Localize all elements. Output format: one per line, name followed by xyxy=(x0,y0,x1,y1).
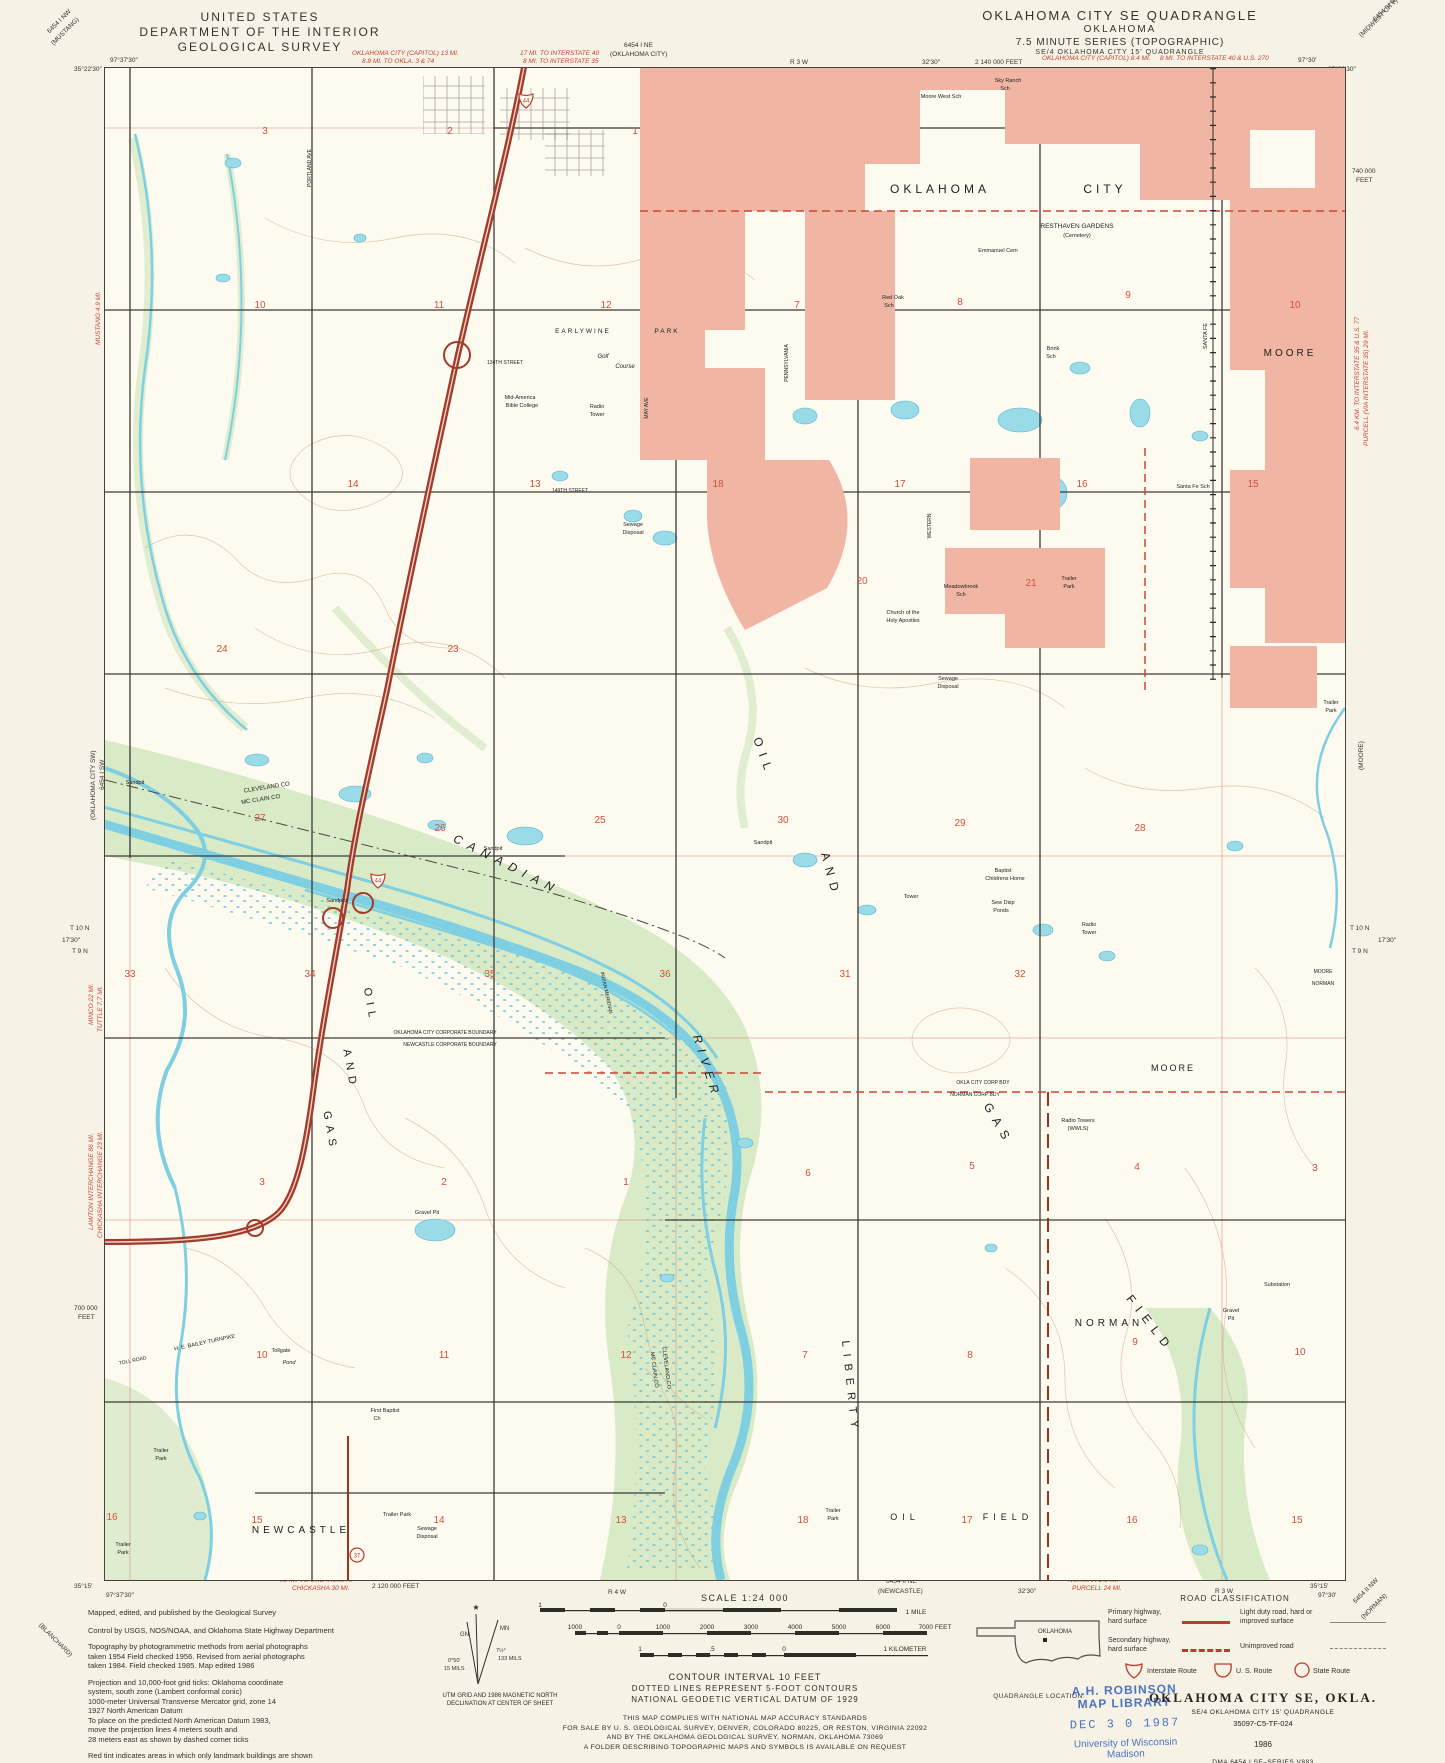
margin-note: 17 MI. TO INTERSTATE 40 xyxy=(520,50,599,57)
state-route-circle-icon xyxy=(1295,1663,1309,1677)
scale-label: 1 KILOMETER xyxy=(884,1646,927,1653)
production-note-line: Projection and 10,000-foot grid ticks: O… xyxy=(88,1678,438,1688)
section-number: 10 xyxy=(1294,1347,1306,1358)
margin-note: (BLANCHARD) xyxy=(37,1622,73,1658)
compliance-line: A FOLDER DESCRIBING TOPOGRAPHIC MAPS AND… xyxy=(500,1743,990,1753)
section-number: 7 xyxy=(794,300,800,311)
map-label: Pit xyxy=(1228,1316,1235,1322)
production-note-line: Red tint indicates areas in which only l… xyxy=(88,1751,438,1761)
map-label: FIELD xyxy=(983,1512,1034,1522)
margin-note: TUTTLE 7.7 MI. xyxy=(97,986,104,1032)
map-label: NORMAN xyxy=(1075,1318,1143,1329)
map-label: PORTLAND AVE xyxy=(307,148,313,187)
interstate-shield-icon xyxy=(1126,1664,1142,1678)
map-label: Park xyxy=(1325,708,1337,714)
section-number: 20 xyxy=(856,576,868,587)
compliance-note: THIS MAP COMPLIES WITH NATIONAL MAP ACCU… xyxy=(500,1714,990,1752)
margin-note: 97°30′ xyxy=(1298,57,1316,64)
section-number: 12 xyxy=(600,300,612,311)
map-label: MAY AVE xyxy=(644,397,650,419)
section-number: 16 xyxy=(106,1512,118,1523)
primary-highway-sample xyxy=(1182,1621,1230,1624)
map-label: OKLAHOMA CITY CORPORATE BOUNDARY xyxy=(393,1030,497,1036)
topo-map-sheet: UNITED STATES DEPARTMENT OF THE INTERIOR… xyxy=(0,0,1445,1763)
map-label: Park xyxy=(827,1516,839,1522)
margin-note: 8 MI. TO INTERSTATE 35 xyxy=(523,58,599,65)
interstate-route-label: Interstate Route xyxy=(1147,1668,1197,1675)
scale-bars: SCALE 1:24 000 101 MILE10000100020003000… xyxy=(480,1592,1010,1664)
section-number: 18 xyxy=(712,479,724,490)
section-number: 13 xyxy=(615,1515,627,1526)
map-label: Tower xyxy=(1082,930,1097,936)
section-number: 17 xyxy=(961,1515,973,1526)
section-number: 16 xyxy=(1076,479,1088,490)
state-route-label: State Route xyxy=(1313,1668,1350,1675)
section-number: 18 xyxy=(797,1515,809,1526)
map-label: Sky Ranch xyxy=(995,78,1022,84)
scale-label: 1000 xyxy=(656,1624,671,1631)
section-number: 12 xyxy=(620,1350,632,1361)
map-label: Mid-America xyxy=(505,395,537,401)
map-label: Sewage xyxy=(938,676,958,682)
scale-label: 5000 xyxy=(832,1624,847,1631)
map-label: NORMAN CORP BDY xyxy=(950,1092,1000,1098)
margin-note: 6.4 KM. TO INTERSTATE 35 & U.S. 77 xyxy=(1354,317,1361,430)
margin-note: 97°37′30″ xyxy=(110,57,138,64)
scale-label: 6000 xyxy=(876,1624,891,1631)
margin-note: (OKLAHOMA CITY SW) xyxy=(90,750,97,820)
map-label: Ponds xyxy=(993,908,1009,914)
map-label: EARLYWINE xyxy=(555,328,611,335)
route-number: 44 xyxy=(523,99,530,105)
scale-label: 2000 xyxy=(700,1624,715,1631)
section-number: 11 xyxy=(439,1350,450,1361)
map-label: Moore West Sch xyxy=(921,94,962,100)
map-label: Pond xyxy=(283,1360,297,1366)
contour-line: NATIONAL GEODETIC VERTICAL DATUM OF 1929 xyxy=(560,1694,930,1705)
map-label: Radio xyxy=(590,404,604,410)
star-icon: ★ xyxy=(472,1603,479,1612)
margin-note: 32′30″ xyxy=(1018,1588,1036,1595)
contour-line: DOTTED LINES REPRESENT 5-FOOT CONTOURS xyxy=(560,1683,930,1694)
map-label: WESTERN xyxy=(927,513,933,538)
margin-note: (MOORE) xyxy=(1358,741,1365,770)
production-note-paragraph: Mapped, edited, and published by the Geo… xyxy=(88,1608,438,1618)
section-number: 29 xyxy=(954,818,966,829)
map-label: Childrens Home xyxy=(985,876,1024,882)
sheet-dma-code: DMA 6454 I SE–SERIES V883 xyxy=(1128,1759,1398,1763)
map-label: OKLA CITY CORP BDY xyxy=(956,1080,1010,1086)
margin-note: 35°15′ xyxy=(1310,1583,1328,1590)
margin-note: T 10 N xyxy=(70,925,89,932)
map-label: Ch xyxy=(373,1416,380,1422)
section-number: 9 xyxy=(1125,290,1131,301)
mile-bar xyxy=(540,1608,897,1612)
section-number: 33 xyxy=(124,969,136,980)
map-label: 149TH STREET xyxy=(552,488,588,494)
production-notes: Mapped, edited, and published by the Geo… xyxy=(88,1608,438,1763)
map-label: Radio Towers xyxy=(1061,1118,1094,1124)
primary-highway-label: Primary highway,hard surface xyxy=(1108,1608,1161,1626)
map-label: Baptist xyxy=(995,868,1012,874)
scale-label: 0 xyxy=(663,1602,667,1609)
production-note-line: Topography by photogrammetric methods fr… xyxy=(88,1642,438,1652)
scale-label: 0 xyxy=(617,1624,621,1631)
section-number: 21 xyxy=(1025,578,1037,589)
map-label: Disposal xyxy=(937,684,958,690)
margin-note: T 10 N xyxy=(1350,925,1369,932)
section-number: 8 xyxy=(967,1350,973,1361)
map-label: Trailer xyxy=(115,1542,131,1548)
margin-note: FEET xyxy=(78,1314,95,1321)
margin-note: CHICKASHA 30 MI. xyxy=(292,1585,350,1592)
section-number: 30 xyxy=(777,815,789,826)
scale-label: .5 xyxy=(709,1646,715,1653)
section-number: 31 xyxy=(839,969,851,980)
contour-line: CONTOUR INTERVAL 10 FEET xyxy=(560,1672,930,1683)
margin-note: CHICKASHA INTERCHANGE 23 MI. xyxy=(97,1131,104,1238)
margin-note: 17′30″ xyxy=(1378,937,1396,944)
sheet-year: 1986 xyxy=(1128,1740,1398,1749)
map-label: OKLAHOMA xyxy=(890,182,990,196)
margin-note: T 9 N xyxy=(1352,948,1368,955)
production-note-line: system, south zone (Lambert conformal co… xyxy=(88,1687,438,1697)
route-number: 37 xyxy=(354,1554,361,1560)
map-label: PARK xyxy=(654,328,679,335)
section-number: 10 xyxy=(1289,300,1301,311)
section-number: 3 xyxy=(262,126,268,137)
margin-note: OKLAHOMA CITY (CAPITOL) 8.4 MI. xyxy=(1042,55,1151,62)
scale-label: 1 xyxy=(538,1602,542,1609)
map-label: Trailer xyxy=(153,1448,169,1454)
map-label: Park xyxy=(117,1550,129,1556)
section-number: 3 xyxy=(259,1177,265,1188)
gn-degrees: 0°50′ xyxy=(448,1658,460,1664)
section-number: 14 xyxy=(433,1515,445,1526)
section-number: 3 xyxy=(1312,1163,1318,1174)
map-label: NEWCASTLE xyxy=(252,1525,350,1536)
section-number: 11 xyxy=(434,300,445,311)
margin-note: LAWTON INTERCHANGE 86 MI. xyxy=(88,1133,95,1230)
quad-location-dot xyxy=(1043,1638,1047,1642)
sheet-code: 35097-C5-TF-024 xyxy=(1128,1719,1398,1728)
sheet-title-header: OKLAHOMA CITY SE QUADRANGLE OKLAHOMA 7.5… xyxy=(880,8,1360,58)
unimproved-road-label: Unimproved road xyxy=(1240,1642,1294,1651)
map-label: Sandpit xyxy=(126,780,145,786)
margin-note: 2 120 000 FEET xyxy=(372,1583,419,1590)
section-number: 28 xyxy=(1134,823,1146,834)
light-duty-road-sample xyxy=(1330,1622,1386,1623)
margin-note: 35°15′ xyxy=(74,1583,92,1590)
map-label: Tower xyxy=(904,894,919,900)
map-label: Sch xyxy=(1046,354,1055,360)
production-note-line: taken 1954 Field checked 1956. Revised f… xyxy=(88,1652,438,1662)
section-number: 13 xyxy=(529,479,541,490)
map-label: Disposal xyxy=(622,530,643,536)
us-route-label: U. S. Route xyxy=(1236,1668,1272,1675)
map-label: Church of the xyxy=(886,610,919,616)
map-canvas: 444437 321101112789101413181716152423202… xyxy=(105,68,1345,1580)
map-label: Sandpit xyxy=(754,840,773,846)
quad-series: 7.5 MINUTE SERIES (TOPOGRAPHIC) xyxy=(880,37,1360,50)
map-label: Park xyxy=(1063,584,1075,590)
map-label: Sch xyxy=(956,592,965,598)
scale-label: 7000 FEET xyxy=(919,1624,952,1631)
gn-mils: 15 MILS xyxy=(444,1666,465,1672)
map-label: Trailer xyxy=(1061,576,1077,582)
map-label: MOORE xyxy=(1314,969,1334,975)
map-label: Trailer xyxy=(825,1508,841,1514)
section-number: 25 xyxy=(594,815,606,826)
margin-note: (OKLAHOMA CITY) xyxy=(610,51,667,58)
map-label: Sandpit xyxy=(484,846,503,852)
feet-bar xyxy=(575,1631,927,1635)
margin-note: T 9 N xyxy=(72,948,88,955)
map-label: Sch xyxy=(884,303,893,309)
map-label: Trailer Park xyxy=(383,1512,411,1518)
map-label: Gravel xyxy=(1223,1308,1239,1314)
section-number: 10 xyxy=(256,1350,268,1361)
production-note-line: Control by USGS, NOS/NOAA, and Oklahoma … xyxy=(88,1626,438,1636)
scale-label: 1000 xyxy=(568,1624,583,1631)
margin-note: 8 MI. TO INTERSTATE 40 & U.S. 270 xyxy=(1160,55,1269,62)
map-label: 134TH STREET xyxy=(487,360,523,366)
section-number: 16 xyxy=(1126,1515,1138,1526)
production-note-line: 1000-meter Universal Transverse Mercator… xyxy=(88,1697,438,1707)
compliance-line: AND BY THE OKLAHOMA GEOLOGICAL SURVEY, N… xyxy=(500,1733,990,1743)
map-label: Park xyxy=(155,1456,167,1462)
section-number: 5 xyxy=(969,1161,975,1172)
production-note-line: taken 1984. Field checked 1985. Map edit… xyxy=(88,1661,438,1671)
map-label: MOORE xyxy=(1151,1063,1195,1073)
margin-note: MINCO 22 MI. xyxy=(88,983,95,1025)
production-note-line: 1927 North American Datum xyxy=(88,1706,438,1716)
margin-note: OKLAHOMA CITY (CAPITOL) 13 MI. xyxy=(352,50,459,57)
secondary-highway-label: Secondary highway,hard surface xyxy=(1108,1636,1171,1654)
margin-note: 97°30′ xyxy=(1318,1592,1336,1599)
map-graphic: 444437 321101112789101413181716152423202… xyxy=(105,68,1345,1580)
section-number: 6 xyxy=(805,1168,811,1179)
margin-note: 2 140 000 FEET xyxy=(975,59,1022,66)
map-label: (WWLS) xyxy=(1068,1126,1089,1132)
map-label: Bible College xyxy=(506,403,538,409)
quad-state: OKLAHOMA xyxy=(880,24,1360,37)
map-label: (Cemetery) xyxy=(1063,233,1091,239)
section-number: 34 xyxy=(304,969,316,980)
route-number: 44 xyxy=(375,879,382,885)
section-number: 24 xyxy=(216,644,228,655)
scale-label: 0 xyxy=(782,1646,786,1653)
map-label: Sandpits xyxy=(326,898,348,904)
section-number: 7 xyxy=(802,1350,808,1361)
margin-note: 6454 I NE xyxy=(624,42,653,49)
map-label: CITY xyxy=(1083,182,1126,196)
map-label: Tower xyxy=(590,412,605,418)
map-label: First Baptist xyxy=(370,1408,400,1414)
margin-note: 740 000 xyxy=(1352,168,1376,175)
road-classification-title: ROAD CLASSIFICATION xyxy=(1160,1594,1310,1603)
section-number: 36 xyxy=(659,969,671,980)
map-label: Course xyxy=(615,364,635,370)
section-number: 15 xyxy=(1291,1515,1303,1526)
map-label: OIL xyxy=(890,1512,920,1522)
scale-label: 1 MILE xyxy=(906,1609,927,1616)
unimproved-road-sample xyxy=(1330,1648,1386,1649)
section-number: 9 xyxy=(1132,1337,1138,1348)
agency-line: UNITED STATES xyxy=(110,10,410,25)
margin-note: 700 000 xyxy=(74,1305,98,1312)
section-number: 14 xyxy=(347,479,359,490)
kilometer-bar xyxy=(640,1653,928,1657)
sheet-name: OKLAHOMA CITY SE, OKLA. xyxy=(1128,1690,1398,1706)
state-name: OKLAHOMA xyxy=(1038,1629,1072,1635)
scale-label: 3000 xyxy=(744,1624,759,1631)
map-label: Sew Disp xyxy=(991,900,1014,906)
map-label: MOORE xyxy=(1264,348,1317,359)
map-label: PENNSYLVANIA xyxy=(784,344,790,382)
margin-note: 35°22′30″ xyxy=(74,66,102,73)
map-label: NORMAN xyxy=(1312,981,1335,987)
section-number: 35 xyxy=(484,969,496,980)
map-label: Trailer xyxy=(1323,700,1339,706)
agency-header: UNITED STATES DEPARTMENT OF THE INTERIOR… xyxy=(110,10,410,55)
map-label: Sch xyxy=(1000,86,1009,92)
map-label: Sewage xyxy=(623,522,643,528)
map-label: Sewage xyxy=(417,1526,437,1532)
map-label: Disposal xyxy=(416,1534,437,1540)
map-label: Emmanuel Cem xyxy=(978,248,1018,254)
light-duty-road-label: Light duty road, hard orimproved surface xyxy=(1240,1608,1312,1626)
margin-note: R 3 W xyxy=(790,59,808,66)
map-label: SANTA FE xyxy=(1203,323,1209,350)
oklahoma-state-outline-icon: OKLAHOMA xyxy=(973,1614,1103,1686)
sheet-title-block: OKLAHOMA CITY SE, OKLA. SE/4 OKLAHOMA CI… xyxy=(1128,1690,1398,1763)
map-label: NEWCASTLE CORPORATE BOUNDARY xyxy=(403,1042,497,1048)
map-label: Radio xyxy=(1082,922,1096,928)
section-number: 1 xyxy=(632,126,638,137)
sheet-subname: SE/4 OKLAHOMA CITY 15′ QUADRANGLE xyxy=(1128,1709,1398,1716)
map-label: Meadowbrook xyxy=(944,584,979,590)
section-number: 4 xyxy=(1134,1162,1140,1173)
compliance-line: FOR SALE BY U. S. GEOLOGICAL SURVEY, DEN… xyxy=(500,1724,990,1734)
map-label: Red Oak xyxy=(882,295,904,301)
section-number: 27 xyxy=(254,813,266,824)
map-label: Santa Fe Sch xyxy=(1176,484,1209,490)
us-route-shield-icon xyxy=(1215,1664,1231,1677)
production-note-line: move the projection lines 4 meters south… xyxy=(88,1725,438,1735)
section-number: 23 xyxy=(447,644,459,655)
secondary-highway-sample xyxy=(1182,1649,1230,1652)
state-route-circle-icon: 37 xyxy=(350,1548,364,1562)
margin-note: 8.8 MI. TO OKLA. 3 & 74 xyxy=(362,58,434,65)
agency-line: DEPARTMENT OF THE INTERIOR xyxy=(110,25,410,40)
section-number: 26 xyxy=(434,823,446,834)
section-number: 2 xyxy=(441,1177,447,1188)
quad-title: OKLAHOMA CITY SE QUADRANGLE xyxy=(880,8,1360,24)
map-label: Tollgate xyxy=(272,1348,291,1354)
section-number: 15 xyxy=(1247,479,1259,490)
section-number: 10 xyxy=(254,300,266,311)
margin-note: 17′30″ xyxy=(62,937,80,944)
scale-title: SCALE 1:24 000 xyxy=(701,1593,789,1603)
margin-note: 32′30″ xyxy=(922,59,940,66)
section-number: 8 xyxy=(957,297,963,308)
section-number: 2 xyxy=(447,126,453,137)
margin-note: 97°37′30″ xyxy=(106,1592,134,1599)
margin-note: MUSTANG 4.9 MI. xyxy=(95,291,102,345)
map-label: Gravel Pit xyxy=(415,1210,440,1216)
scale-label: 4000 xyxy=(788,1624,803,1631)
map-label: RESTHAVEN GARDENS xyxy=(1040,223,1114,230)
map-label: Substation xyxy=(1264,1282,1290,1288)
margin-note: PURCELL 24 MI. xyxy=(1072,1585,1122,1592)
section-number: 17 xyxy=(894,479,906,490)
production-note-line: To place on the predicted North American… xyxy=(88,1716,438,1726)
route-shield-legend: Interstate Route U. S. Route State Route xyxy=(1120,1660,1400,1682)
section-number: 1 xyxy=(623,1177,629,1188)
compliance-line: THIS MAP COMPLIES WITH NATIONAL MAP ACCU… xyxy=(500,1714,990,1724)
map-label: Holy Apostles xyxy=(886,618,920,624)
map-label: Brink xyxy=(1047,346,1060,352)
map-label: Golf xyxy=(597,354,609,360)
margin-note: PURCELL (VIA INTERSTATE 35) 29 MI. xyxy=(1363,330,1370,446)
margin-note: (MIDWEST CITY) xyxy=(1358,0,1399,39)
section-number: 32 xyxy=(1014,969,1026,980)
margin-note: FEET xyxy=(1356,177,1373,184)
scale-label: 1 xyxy=(638,1646,642,1653)
production-note-line: 28 meters east as shown by dashed corner… xyxy=(88,1735,438,1745)
production-note-paragraph: Topography by photogrammetric methods fr… xyxy=(88,1642,438,1671)
production-note-paragraph: Control by USGS, NOS/NOAA, and Oklahoma … xyxy=(88,1626,438,1636)
production-note-paragraph: Red tint indicates areas in which only l… xyxy=(88,1751,438,1761)
production-note-line: Mapped, edited, and published by the Geo… xyxy=(88,1608,438,1618)
grid-north-label: GN xyxy=(460,1632,469,1638)
production-note-paragraph: Projection and 10,000-foot grid ticks: O… xyxy=(88,1678,438,1745)
contour-interval-note: CONTOUR INTERVAL 10 FEET DOTTED LINES RE… xyxy=(560,1672,930,1705)
